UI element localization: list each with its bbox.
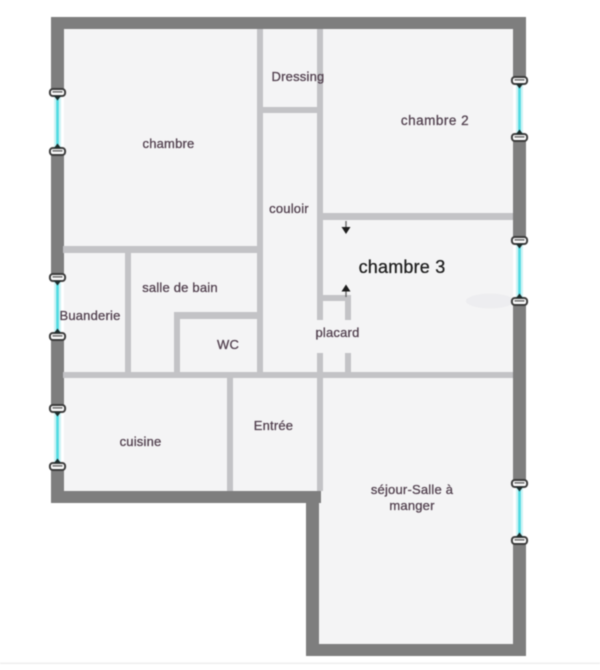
svg-text:chambre: chambre (143, 136, 195, 151)
svg-text:Dressing: Dressing (272, 69, 325, 84)
svg-text:manger: manger (389, 498, 435, 513)
svg-text:cuisine: cuisine (120, 434, 162, 449)
svg-text:placard: placard (315, 325, 359, 340)
svg-text:Entrée: Entrée (254, 418, 294, 433)
svg-text:couloir: couloir (269, 201, 309, 216)
svg-text:séjour-Salle à: séjour-Salle à (371, 482, 454, 497)
svg-text:chambre 3: chambre 3 (359, 257, 446, 277)
svg-text:chambre 2: chambre 2 (401, 113, 469, 128)
svg-text:Buanderie: Buanderie (59, 308, 120, 323)
svg-text:salle de bain: salle de bain (142, 280, 218, 295)
svg-text:WC: WC (217, 337, 239, 352)
